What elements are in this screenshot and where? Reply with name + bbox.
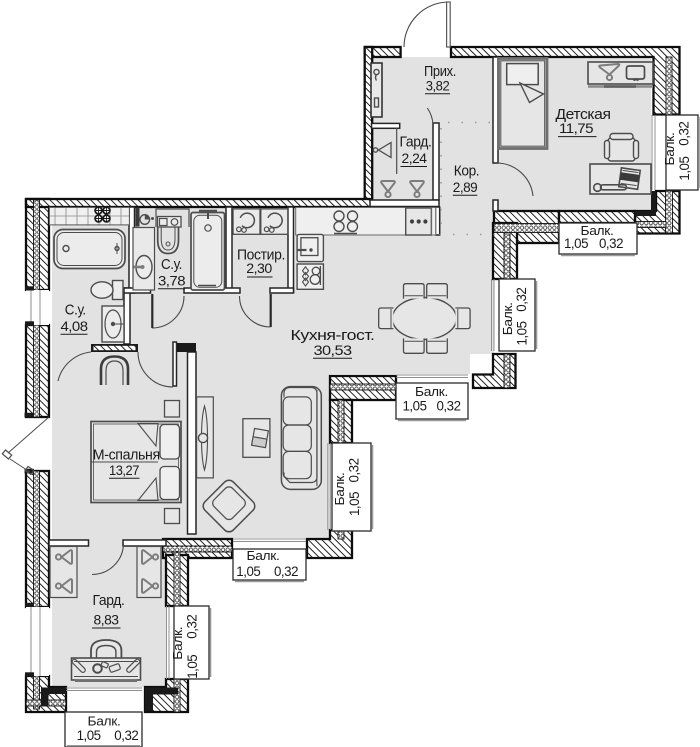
svg-text:0,32: 0,32	[437, 398, 462, 414]
svg-text:0,32: 0,32	[346, 458, 362, 483]
svg-text:1,05: 1,05	[564, 235, 589, 251]
svg-text:2,30: 2,30	[246, 260, 272, 276]
svg-text:С.у.: С.у.	[65, 302, 86, 319]
svg-text:3,78: 3,78	[158, 273, 186, 289]
svg-text:0,32: 0,32	[676, 121, 692, 146]
svg-text:13,27: 13,27	[109, 462, 140, 478]
svg-text:1,05: 1,05	[346, 491, 362, 516]
svg-text:Кор.: Кор.	[454, 163, 480, 180]
svg-text:1,05: 1,05	[77, 727, 102, 743]
svg-text:2,24: 2,24	[402, 150, 428, 166]
svg-text:0,32: 0,32	[599, 235, 624, 251]
svg-text:3,82: 3,82	[426, 78, 450, 94]
svg-text:Гард.: Гард.	[93, 592, 125, 609]
svg-text:1,05: 1,05	[236, 563, 261, 579]
svg-text:1,05: 1,05	[676, 156, 692, 181]
svg-text:1,05: 1,05	[403, 398, 428, 414]
svg-text:30,53: 30,53	[314, 342, 353, 358]
svg-text:Балк.: Балк.	[247, 548, 280, 563]
svg-text:С.у.: С.у.	[161, 256, 182, 273]
svg-text:0,32: 0,32	[184, 614, 200, 639]
svg-text:4,08: 4,08	[61, 318, 89, 334]
svg-text:11,75: 11,75	[559, 120, 594, 136]
svg-text:8,83: 8,83	[94, 612, 120, 628]
svg-text:1,05: 1,05	[184, 654, 200, 679]
svg-text:0,32: 0,32	[114, 727, 139, 743]
svg-text:2,89: 2,89	[453, 179, 478, 195]
svg-text:0,32: 0,32	[513, 287, 529, 312]
svg-text:Гард.: Гард.	[400, 134, 432, 151]
svg-text:0,32: 0,32	[274, 563, 299, 579]
svg-text:М-спальня: М-спальня	[93, 447, 160, 464]
svg-text:1,05: 1,05	[514, 321, 530, 346]
